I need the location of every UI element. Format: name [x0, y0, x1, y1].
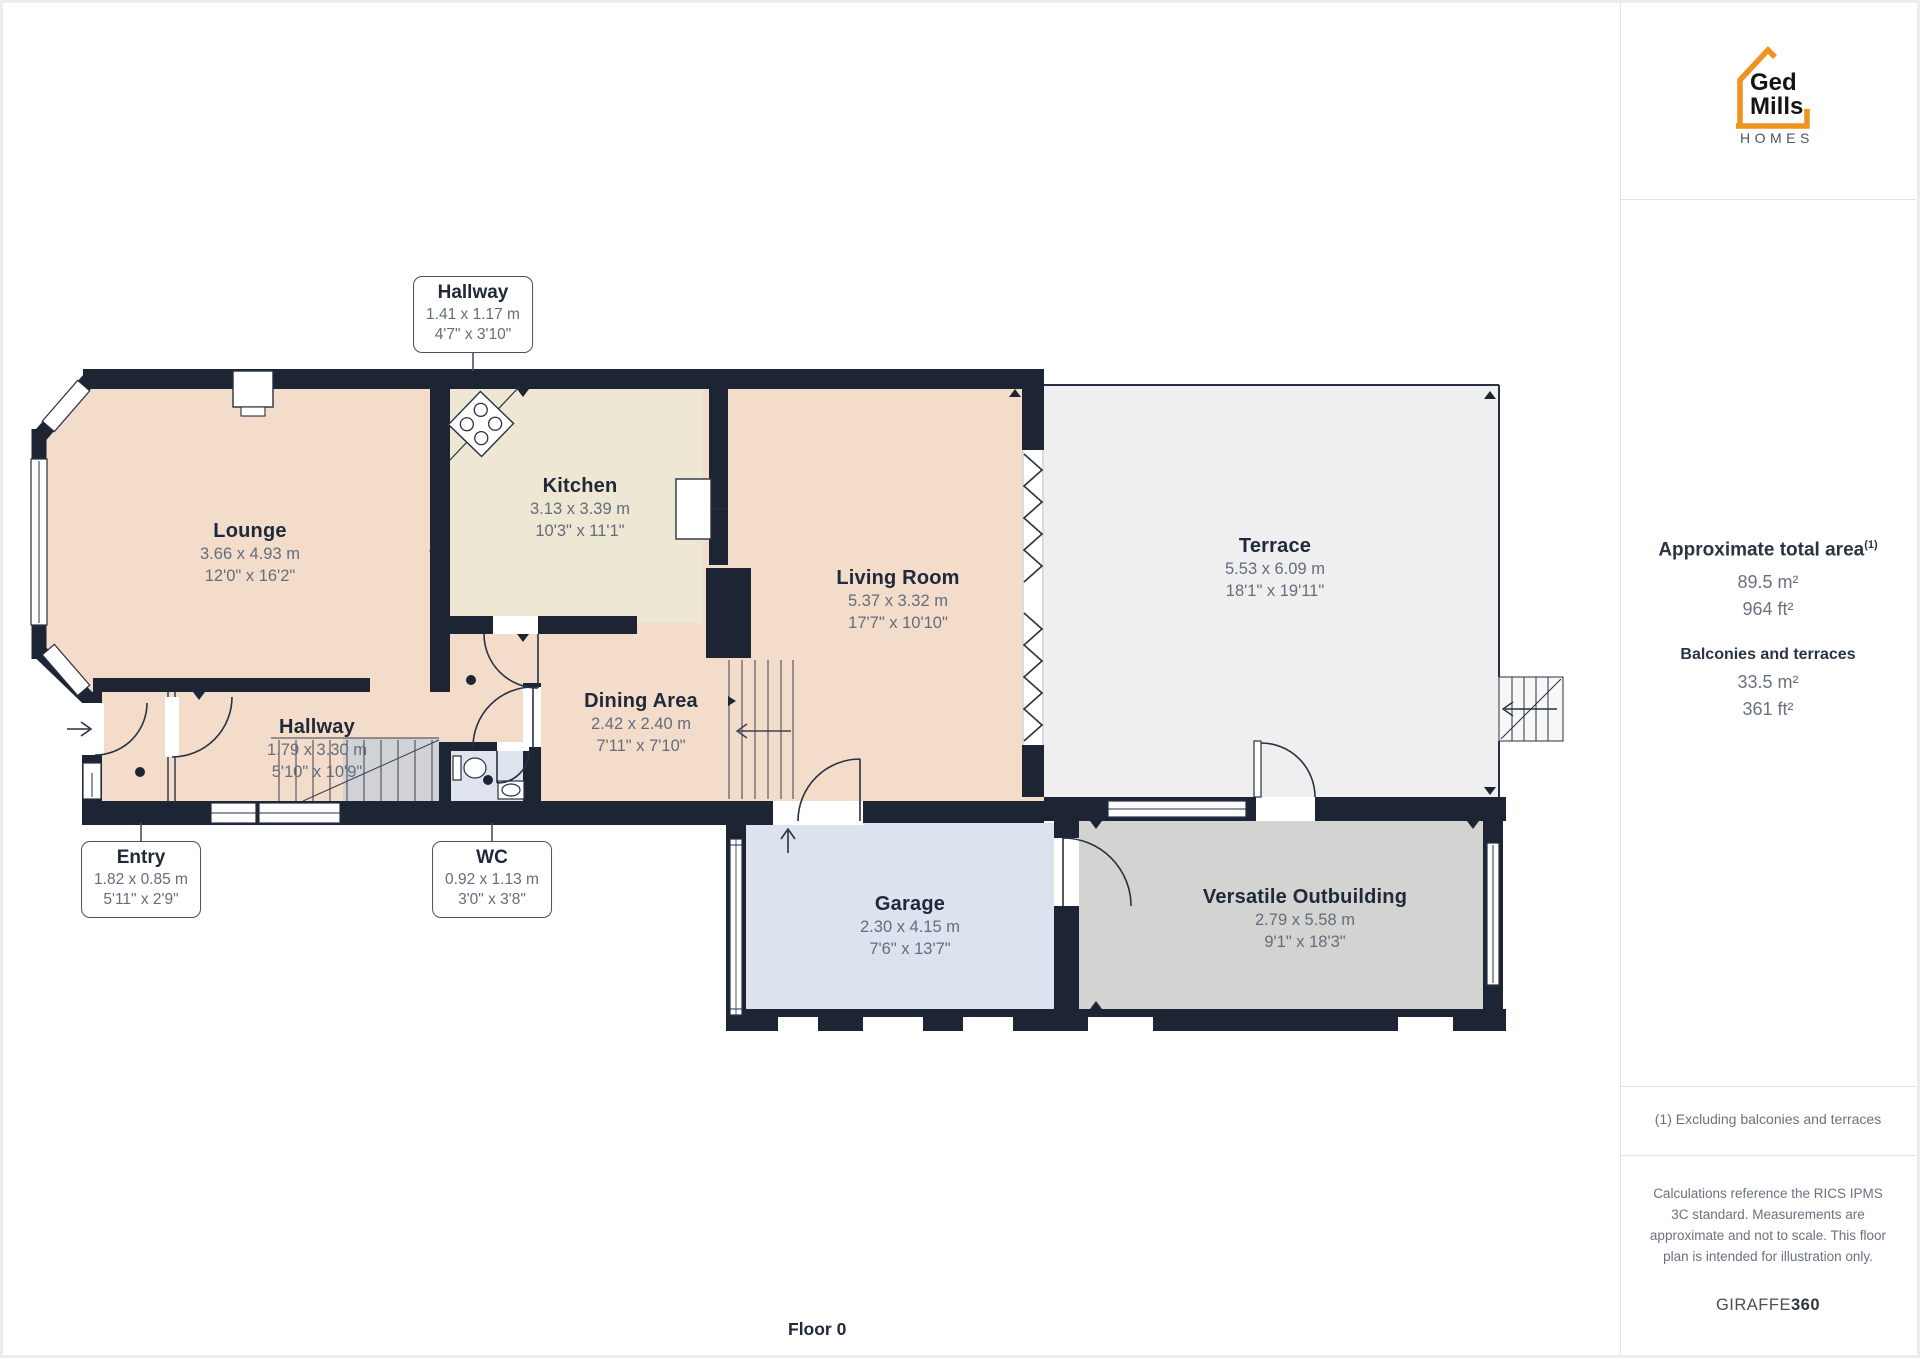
callout-entry: Entry 1.82 x 0.85 m 5'11" x 2'9" [81, 841, 201, 918]
room-label-terrace: Terrace 5.53 x 6.09 m 18'1" x 19'11" [1225, 534, 1325, 602]
callout-metric: 0.92 x 1.13 m [445, 870, 539, 890]
room-metric: 5.37 x 3.32 m [836, 591, 959, 613]
room-label-lounge: Lounge 3.66 x 4.93 m 12'0" x 16'2" [200, 519, 300, 587]
disclaimer: Calculations reference the RICS IPMS 3C … [1648, 1183, 1888, 1267]
room-label-kitchen: Kitchen 3.13 x 3.39 m 10'3" x 11'1" [530, 474, 630, 542]
room-metric: 5.53 x 6.09 m [1225, 559, 1325, 581]
room-name: Versatile Outbuilding [1203, 885, 1407, 910]
room-metric: 2.79 x 5.58 m [1203, 910, 1407, 932]
sidebar-section-line-2 [1620, 1086, 1916, 1087]
balconies-ft2: 361 ft² [1620, 699, 1916, 720]
room-metric: 3.66 x 4.93 m [200, 544, 300, 566]
room-name: Garage [860, 892, 960, 917]
room-name: Hallway [267, 715, 367, 740]
logo-word-ged: Ged [1750, 71, 1797, 95]
room-imperial: 18'1" x 19'11" [1225, 581, 1325, 603]
room-name: Living Room [836, 566, 959, 591]
room-name: Lounge [200, 519, 300, 544]
room-name: Terrace [1225, 534, 1325, 559]
room-metric: 2.42 x 2.40 m [584, 714, 698, 736]
logo-word-mills: Mills [1750, 95, 1803, 119]
room-metric: 3.13 x 3.39 m [530, 499, 630, 521]
logo-word-homes: HOMES [1740, 130, 1814, 146]
room-imperial: 7'11" x 7'10" [584, 736, 698, 758]
total-area-title-text: Approximate total area [1658, 539, 1864, 560]
room-label-garage: Garage 2.30 x 4.15 m 7'6" x 13'7" [860, 892, 960, 960]
footnote: (1) Excluding balconies and terraces [1620, 1111, 1916, 1127]
sidebar-section-line-3 [1620, 1155, 1916, 1156]
callout-imperial: 3'0" x 3'8" [445, 890, 539, 910]
floor-label: Floor 0 [788, 1319, 846, 1340]
total-area-title: Approximate total area(1) [1620, 539, 1916, 561]
callout-metric: 1.82 x 0.85 m [94, 870, 188, 890]
room-metric: 2.30 x 4.15 m [860, 917, 960, 939]
callout-name: WC [445, 846, 539, 870]
total-area-ft2: 964 ft² [1620, 599, 1916, 620]
bifold-doors [1022, 450, 1044, 745]
room-imperial: 17'7" x 10'10" [836, 613, 959, 635]
callout-name: Entry [94, 846, 188, 870]
callout-hallway: Hallway 1.41 x 1.17 m 4'7" x 3'10" [413, 276, 533, 353]
callout-wc: WC 0.92 x 1.13 m 3'0" x 3'8" [432, 841, 552, 918]
total-area-m2: 89.5 m² [1620, 572, 1916, 593]
room-name: Kitchen [530, 474, 630, 499]
room-imperial: 12'0" x 16'2" [200, 566, 300, 588]
callout-imperial: 5'11" x 2'9" [94, 890, 188, 910]
room-label-versatile-outbuilding: Versatile Outbuilding 2.79 x 5.58 m 9'1"… [1203, 885, 1407, 953]
room-name: Dining Area [584, 689, 698, 714]
callout-imperial: 4'7" x 3'10" [426, 325, 520, 345]
brand-name: GIRAFFE [1716, 1296, 1791, 1314]
balconies-title: Balconies and terraces [1620, 646, 1916, 664]
callout-name: Hallway [426, 281, 520, 305]
room-imperial: 10'3" x 11'1" [530, 521, 630, 543]
room-label-living-room: Living Room 5.37 x 3.32 m 17'7" x 10'10" [836, 566, 959, 634]
terrace-steps [1499, 677, 1563, 741]
callout-metric: 1.41 x 1.17 m [426, 305, 520, 325]
brand: GIRAFFE360 [1620, 1296, 1916, 1315]
sidebar-section-line-1 [1620, 199, 1916, 200]
balconies-m2: 33.5 m² [1620, 672, 1916, 693]
room-label-dining-area: Dining Area 2.42 x 2.40 m 7'11" x 7'10" [584, 689, 698, 757]
total-area-superscript: (1) [1864, 539, 1877, 551]
room-imperial: 7'6" x 13'7" [860, 939, 960, 961]
room-label-hallway: Hallway 1.79 x 3.30 m 5'10" x 10'9" [267, 715, 367, 783]
room-imperial: 5'10" x 10'9" [267, 762, 367, 784]
floorplan-page: Lounge 3.66 x 4.93 m 12'0" x 16'2" Kitch… [0, 0, 1920, 1358]
room-imperial: 9'1" x 18'3" [1203, 932, 1407, 954]
room-metric: 1.79 x 3.30 m [267, 740, 367, 762]
brand-suffix: 360 [1791, 1296, 1820, 1314]
